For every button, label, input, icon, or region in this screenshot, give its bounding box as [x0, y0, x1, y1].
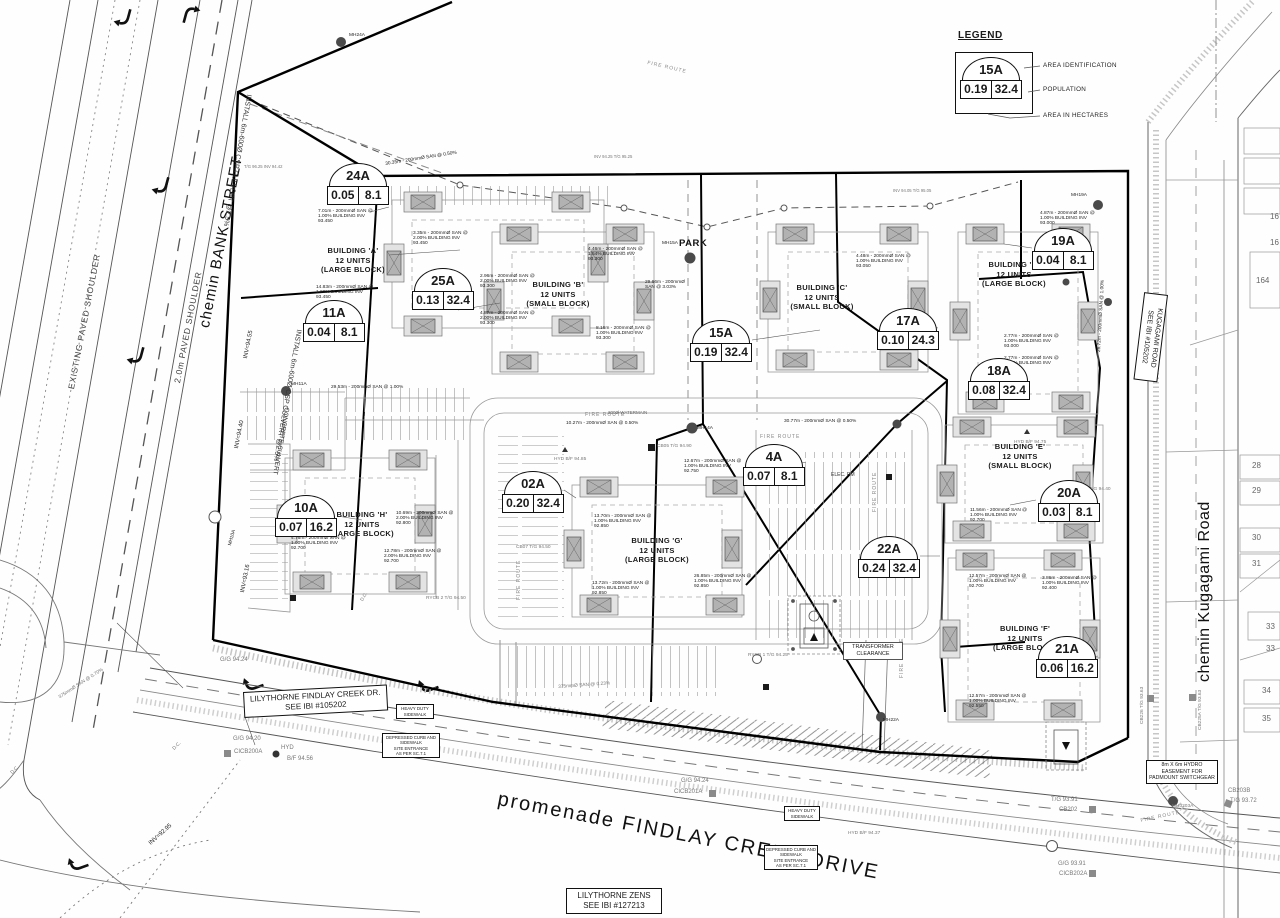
building-label-e: BUILDING 'E' 12 UNITS (SMALL BLOCK) — [964, 442, 1076, 471]
badge-population: 8.1 — [775, 468, 805, 485]
structure-label: CB203B — [1228, 788, 1250, 794]
area-badge-19A: 19A 0.048.1 — [1032, 228, 1094, 270]
pipe-annotation: 13.72m - 200mmØ SAN @ 1.00% BUILDING INV… — [592, 581, 652, 596]
badge-id: 18A — [970, 358, 1028, 381]
pipe-annotation: 10.27m - 200mmØ SAN @ 0.50% — [566, 421, 638, 426]
structure-label: RYCB 1 T/G 94.25 — [748, 653, 788, 658]
badge-id: 24A — [329, 163, 387, 186]
pipe-annotation: 14.83m - 200mmØ SAN @ 1.00% BUILDING INV… — [316, 285, 376, 300]
badge-population: 8.1 — [1070, 504, 1100, 521]
badge-population: 32.4 — [722, 344, 752, 361]
grade-label: G/G 94.24 — [681, 778, 709, 784]
structure-label: CICB202A — [1059, 871, 1087, 877]
watermain-note: 200Ø WATERMAIN — [608, 410, 647, 415]
pipe-annotation: 4.76m - 200mmØ SAN @ 1.00% BUILDING INV … — [291, 536, 349, 551]
heavy-duty-sidewalk-label: HEAVY DUTY SIDEWALK — [396, 704, 434, 719]
depressed-curb-label: DEPRESSED CURB AND SIDEWALK SITE ENTRANC… — [764, 845, 818, 870]
area-badge-20A: 20A 0.038.1 — [1038, 480, 1100, 522]
badge-id: 10A — [277, 495, 335, 518]
invert-label: T/G 96.25 INV 94.42 — [244, 164, 282, 169]
lot-number: 35 — [1262, 714, 1271, 723]
lot-number: 33 — [1266, 644, 1275, 653]
lot-number: 30 — [1252, 533, 1261, 542]
badge-population: 32.4 — [1000, 382, 1030, 399]
badge-hectares: 0.04 — [1033, 252, 1064, 269]
pipe-annotation: 2.77m - 200mmØ SAN @ 1.00% BUILDING INV … — [1004, 334, 1062, 349]
lot-number: 31 — [1252, 559, 1261, 568]
badge-id: 11A — [305, 300, 363, 323]
manhole-label: MH24A — [349, 33, 365, 38]
badge-hectares: 0.07 — [276, 519, 307, 536]
hydrant-label: HYD B/F 94.85 — [554, 457, 586, 462]
manhole-label: MH22A — [883, 718, 899, 723]
manhole-label: MH3203A — [1172, 804, 1193, 809]
park-limits — [688, 180, 757, 420]
heavy-duty-sidewalk-label: HEAVY DUTY SIDEWALK — [784, 806, 820, 821]
bank-street-roadway — [0, 0, 252, 800]
pipe-annotation: 26.85m - 200mmØ SAN @ 1.00% BUILDING INV… — [694, 574, 754, 589]
lot-number: 33 — [1266, 622, 1275, 631]
fire-route-label: FIRE ROUTE — [872, 472, 878, 512]
legend-sample-hectares: 0.19 — [961, 81, 992, 98]
area-badge-10A: 10A 0.0716.2 — [275, 495, 337, 537]
legend-sample-id: 15A — [962, 57, 1020, 80]
legend-label-population: POPULATION — [1043, 86, 1086, 93]
badge-population: 8.1 — [335, 324, 365, 341]
hydro-easement-label: 8m X 6m HYDRO EASEMENT FOR PADMOUNT SWIT… — [1146, 760, 1218, 784]
badge-population: 32.4 — [890, 560, 920, 577]
kugagami-east-lots — [1166, 128, 1280, 742]
switchgear-pad — [1046, 722, 1086, 770]
area-badge-25A: 25A 0.1332.4 — [412, 268, 474, 310]
legend-sample-badge: 15A 0.19 32.4 — [960, 57, 1022, 99]
badge-id: 20A — [1040, 480, 1098, 503]
area-badge-17A: 17A 0.1024.3 — [877, 308, 939, 350]
pipe-annotation: 12.78m - 200mmØ SAN @ 2.00% BUILDING INV… — [384, 549, 444, 564]
invert-label: INV 94.25 T/G 95.25 — [594, 154, 632, 159]
fire-route-label: FIRE ROUTE — [760, 434, 800, 440]
badge-population: 16.2 — [1068, 660, 1098, 677]
badge-hectares: 0.05 — [328, 187, 359, 204]
grade-label: T/G 93.91 — [1051, 797, 1078, 803]
building-label-c: BUILDING 'C' 12 UNITS (SMALL BLOCK) — [766, 283, 878, 312]
manhole-label: MH15A — [662, 241, 678, 246]
badge-population: 24.3 — [909, 332, 939, 349]
badge-hectares: 0.03 — [1039, 504, 1070, 521]
building-label-a: BUILDING 'A' 12 UNITS (LARGE BLOCK) — [297, 246, 409, 275]
manhole-label: MH11A — [291, 382, 307, 387]
legend: LEGEND 15A 0.19 32.4 AREA IDENTIFICATION… — [948, 28, 1278, 132]
badge-hectares: 0.07 — [744, 468, 775, 485]
badge-hectares: 0.06 — [1037, 660, 1068, 677]
lot-number: 29 — [1252, 486, 1261, 495]
badge-hectares: 0.19 — [691, 344, 722, 361]
depressed-curb-label: DEPRESSED CURB AND SIDEWALK SITE ENTRANC… — [382, 733, 440, 758]
badge-hectares: 0.24 — [859, 560, 890, 577]
park-label: PARK — [679, 238, 707, 249]
grade-label: B/F 94.56 — [287, 756, 313, 762]
hydrant-label: HYD B/F 94.75 — [1014, 440, 1046, 445]
area-badge-02A: 02A 0.2032.4 — [502, 471, 564, 513]
site-plan-linework — [0, 0, 1280, 918]
badge-population: 8.1 — [1064, 252, 1094, 269]
badge-id: 25A — [414, 268, 472, 291]
fire-route-label: FIRE ROUTE — [516, 560, 522, 600]
lot-number: 34 — [1262, 686, 1271, 695]
hydrant-label: HYD B/F 94.37 — [848, 831, 880, 836]
hydrant-label: HYD — [281, 745, 294, 751]
findlay-hatch-band — [602, 700, 992, 779]
area-badge-15A: 15A 0.1932.4 — [690, 320, 752, 362]
structure-label: CB225A T/G 93.63 — [1198, 690, 1203, 730]
badge-population: 32.4 — [444, 292, 474, 309]
badge-hectares: 0.10 — [878, 332, 909, 349]
badge-hectares: 0.04 — [304, 324, 335, 341]
structure-label: CB05 T/G 94.90 — [657, 444, 692, 449]
lot-number: 16 — [1270, 238, 1279, 247]
pipe-annotation: 29.66m - 200mmØ SAN @ 3.03% — [645, 280, 685, 290]
badge-id: 15A — [692, 320, 750, 343]
badge-population: 32.4 — [534, 495, 564, 512]
lot-number: 164 — [1256, 276, 1269, 285]
area-badge-22A: 22A 0.2432.4 — [858, 536, 920, 578]
pipe-annotation: 2.96m - 200mmØ SAN @ 2.00% BUILDING INV … — [480, 274, 538, 289]
area-badge-24A: 24A 0.058.1 — [327, 163, 389, 205]
site-plan: LEGEND 15A 0.19 32.4 AREA IDENTIFICATION… — [0, 0, 1280, 918]
legend-sample-population: 32.4 — [992, 81, 1022, 98]
building-label-g: BUILDING 'G' 12 UNITS (LARGE BLOCK) — [601, 536, 713, 565]
badge-id: 4A — [745, 444, 803, 467]
grade-label: G/G 93.91 — [1058, 861, 1086, 867]
pipe-annotation: 3.35m - 200mmØ SAN @ 2.00% BUILDING INV … — [413, 231, 473, 246]
pipe-annotation: 8.16m - 200mmØ SAN @ 1.00% BUILDING INV … — [596, 326, 654, 341]
structure-label: CB07 T/G 94.50 — [516, 545, 551, 550]
badge-id: 22A — [860, 536, 918, 559]
pipe-annotation: 29.53m - 200mmØ SAN @ 1.00% — [331, 385, 403, 390]
southwest-intersection — [0, 560, 420, 918]
manhole-label: MH19A — [1071, 193, 1087, 198]
badge-id: 02A — [504, 471, 562, 494]
legend-label-area-in-hectares: AREA IN HECTARES — [1043, 112, 1108, 119]
street-label-kugagami: chemin Kugagami Road — [1196, 501, 1214, 682]
badge-hectares: 0.08 — [969, 382, 1000, 399]
badge-hectares: 0.13 — [413, 292, 444, 309]
pipe-annotation: 12.57m - 200mmØ SAN @ 1.00% BUILDING INV… — [969, 574, 1027, 589]
area-badge-21A: 21A 0.0616.2 — [1036, 636, 1098, 678]
area-badge-18A: 18A 0.0832.4 — [968, 358, 1030, 400]
pipe-annotation: 3.86m - 200mmØ SAN @ 1.00% BUILDING INV … — [1042, 576, 1097, 591]
badge-population: 8.1 — [359, 187, 389, 204]
pipe-annotation: 12.67m - 200mmØ SAN @ 1.00% BUILDING INV… — [684, 459, 744, 474]
badge-id: 17A — [879, 308, 937, 331]
manhole-label: MH14A — [697, 426, 713, 431]
area-badge-4A: 4A 0.078.1 — [743, 444, 805, 486]
lot-number: 28 — [1252, 461, 1261, 470]
pipe-annotation: 10.69m - 200mmØ SAN @ 2.00% BUILDING INV… — [396, 511, 456, 526]
structure-label: CICB200A — [234, 749, 262, 755]
pipe-annotation: 30.77m - 200mmØ SAN @ 0.50% — [784, 419, 856, 424]
pipe-annotation: 12.57m - 200mmØ SAN @ 1.00% BUILDING INV… — [969, 694, 1027, 709]
area-badge-11A: 11A 0.048.1 — [303, 300, 365, 342]
lot-number: 16 — [1270, 212, 1279, 221]
badge-population: 16.2 — [307, 519, 337, 536]
grade-label: G/G 94.24 — [220, 657, 248, 663]
pipe-annotation: 11.56m - 200mmØ SAN @ 1.00% BUILDING INV… — [970, 508, 1028, 523]
invert-label: INV 94.05 T/G 95.05 — [893, 188, 931, 193]
pipe-annotation: 7.01m - 200mmØ SAN @ 1.00% BUILDING INV … — [318, 209, 378, 224]
structure-label: CICB201A — [674, 789, 702, 795]
pipe-annotation: 13.70m - 200mmØ SAN @ 1.00% BUILDING INV… — [594, 514, 654, 529]
pipe-annotation: 4.46m - 200mmØ SAN @ 1.54% BUILDING INV … — [588, 247, 646, 262]
badge-hectares: 0.20 — [503, 495, 534, 512]
legend-label-area-identification: AREA IDENTIFICATION — [1043, 62, 1117, 69]
structure-label: RYCB 2 T/G 94.50 — [426, 596, 466, 601]
elec-rm-note: ELEC. RM — [831, 472, 855, 478]
structure-label: CB202 — [1059, 807, 1077, 813]
transformer-clearance-label: TRANSFORMER CLEARANCE — [843, 642, 903, 660]
grade-label: T/G 93.72 — [1230, 798, 1257, 804]
pipe-annotation: 4.48m - 200mmØ SAN @ 1.00% BUILDING INV … — [856, 254, 914, 269]
badge-id: 19A — [1034, 228, 1092, 251]
pipe-annotation: 4.87m - 200mmØ SAN @ 2.00% BUILDING INV … — [480, 311, 538, 326]
grade-label: G/G 94.20 — [233, 736, 261, 742]
structure-label: CB226 T/G 93.63 — [1140, 687, 1145, 724]
pipe-annotation: 4.87m - 200mmØ SAN @ 1.00% BUILDING INV … — [1040, 211, 1098, 226]
lilythorne-zens-label: LILYTHORNE ZENS SEE IBI #127213 — [566, 888, 662, 914]
badge-id: 21A — [1038, 636, 1096, 659]
